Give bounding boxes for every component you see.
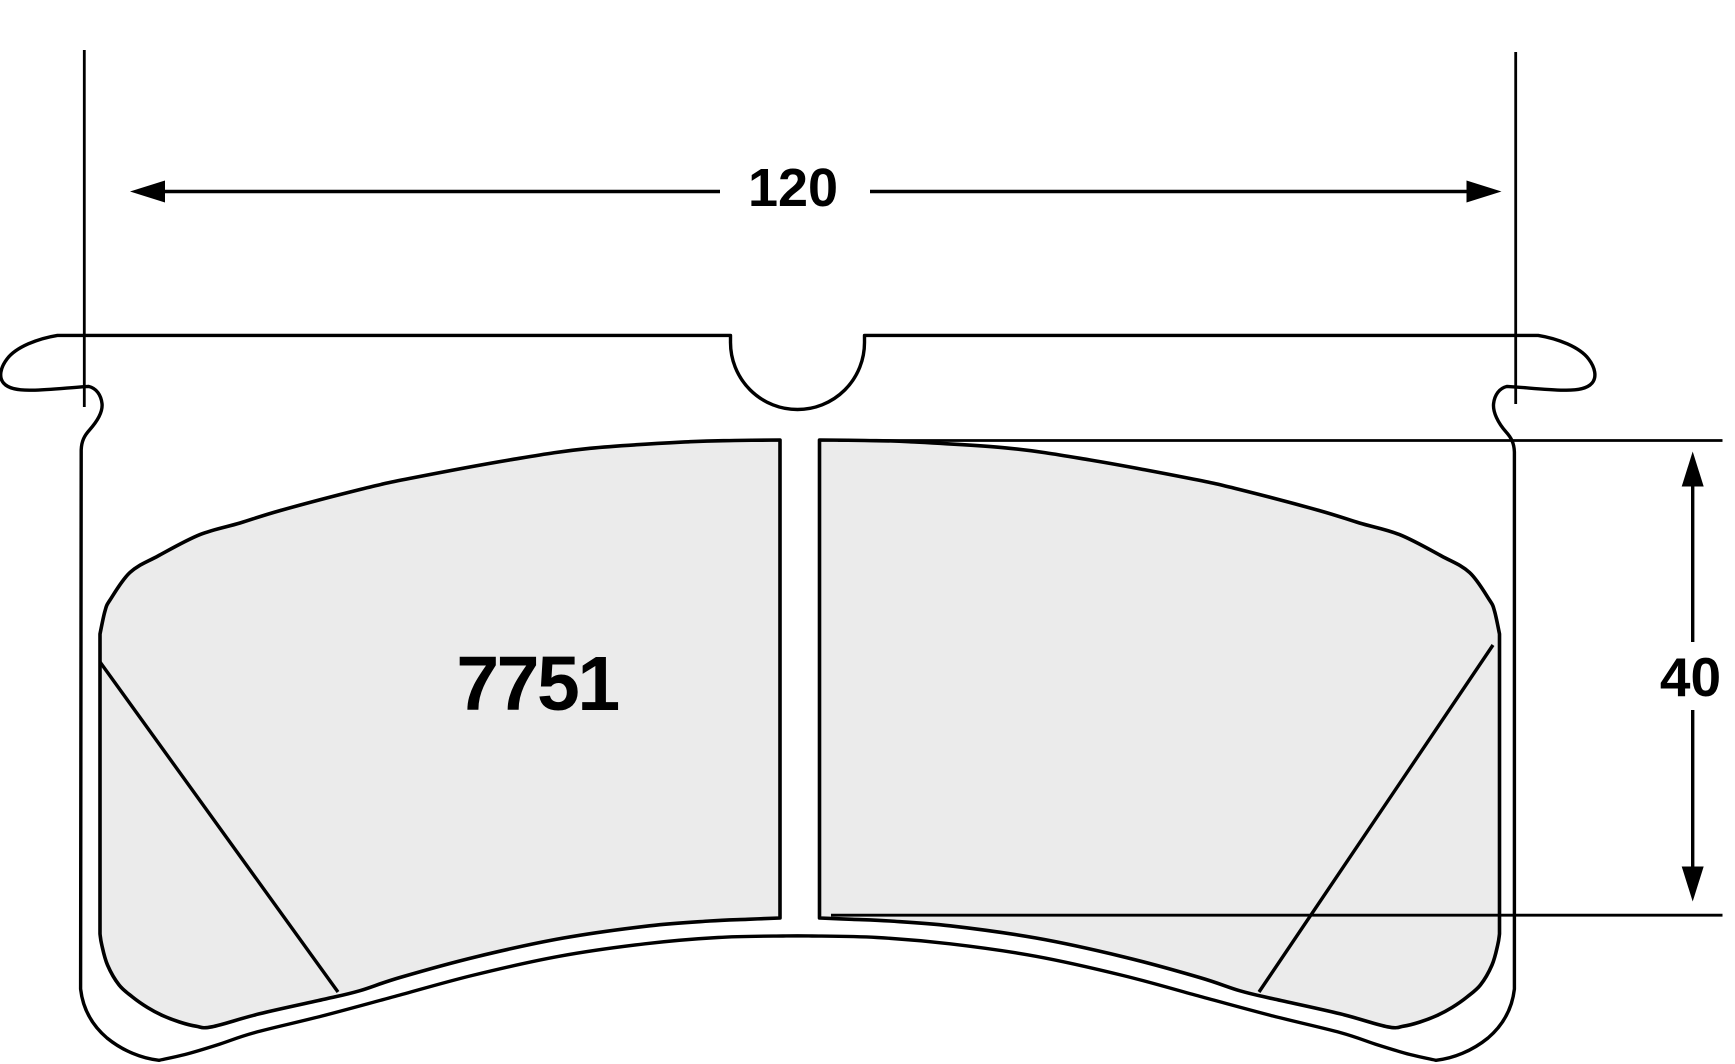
svg-text:120: 120 <box>748 158 838 218</box>
svg-text:40: 40 <box>1660 646 1721 708</box>
svg-text:7751: 7751 <box>456 641 618 727</box>
